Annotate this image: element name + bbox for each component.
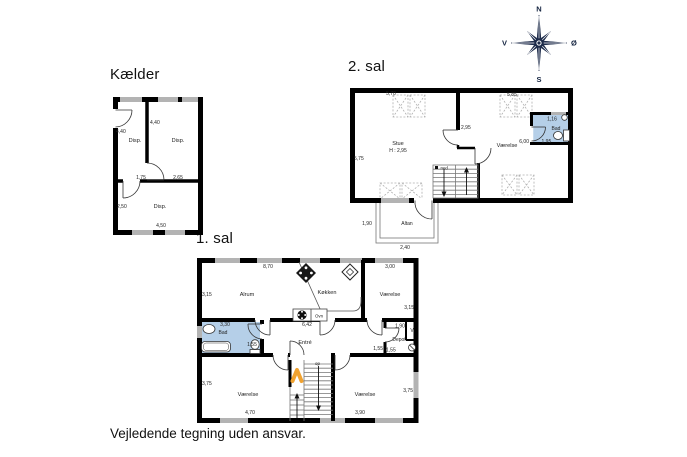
stair-ned-label: ned <box>441 166 449 171</box>
dim-label: 3,15 <box>404 305 414 311</box>
dim-label: 4,40 <box>116 129 126 135</box>
dim-label: 2,50 <box>117 204 127 210</box>
dim-label: 2,65 <box>173 175 183 181</box>
room-label-altan: Altan <box>401 221 413 227</box>
room-label-disp-nw: Disp. <box>129 138 142 144</box>
dim-label: 6,42 <box>302 322 312 328</box>
dim-label: 1,16 <box>547 117 557 123</box>
dim-label: 1,55 <box>373 346 383 352</box>
dim-label: 8,70 <box>263 264 273 270</box>
stair-op-label: op <box>315 361 320 366</box>
dim-label: 5,75 <box>354 156 364 162</box>
dim-label: 3,00 <box>385 264 395 270</box>
sal2-outer-wall <box>353 91 571 201</box>
room-label-depot: Depot <box>392 337 406 343</box>
dim-label: 5,70 <box>386 91 396 97</box>
room-label-vaerelse-ne: Værelse <box>380 292 401 298</box>
dim-label: 3,90 <box>355 410 365 416</box>
floor-plan-sal2: ned 5,70 5,85 2,95 Stue H : 2,95 5,75 Væ… <box>345 55 585 251</box>
room-label-disp-ne: Disp. <box>172 138 185 144</box>
floor-plan-sal1: Ovn op 8,70 3, <box>192 250 427 430</box>
dim-label: 1,55 <box>247 342 257 348</box>
dim-label: 1,95 <box>542 139 552 145</box>
dim-label: 1,90 <box>362 221 372 227</box>
room-label-vaerelse: Værelse <box>497 143 518 149</box>
room-label-stue: Stue <box>392 141 404 147</box>
sink-icon <box>342 264 358 280</box>
dim-label: 5,85 <box>507 92 517 98</box>
room-label-vaerelse-sw: Værelse <box>238 392 259 398</box>
compass-label-north: N <box>536 5 541 14</box>
dim-label: 3,15 <box>202 292 212 298</box>
stair-accent-chevron <box>293 370 302 381</box>
room-label-vaerelse-se: Værelse <box>355 392 376 398</box>
compass-label-west: V <box>502 39 507 48</box>
room-label-bad: Bad <box>552 126 561 132</box>
dim-label: 4,70 <box>245 410 255 416</box>
sal1-staircase: op <box>290 360 333 421</box>
dim-label: 3,30 <box>220 322 230 328</box>
room-label-disp-s: Disp. <box>154 204 167 210</box>
floor-plan-kaelder: 4,40 4,40 Disp. Disp. 1,75 2,65 2,50 Dis… <box>105 90 210 240</box>
ceiling-height-label: H : 2,95 <box>389 148 407 154</box>
dim-label: 3,75 <box>202 381 212 387</box>
kaelder-title: Kælder <box>110 66 160 83</box>
dim-label: 1,75 <box>136 175 146 181</box>
ventilation-fan-icon <box>409 344 416 351</box>
compass-label-east: Ø <box>571 39 577 48</box>
sal1-doors <box>248 320 399 370</box>
sal2-staircase: ned <box>433 165 478 198</box>
room-label-entre: Entré <box>298 340 311 346</box>
room-label-alrum: Alrum <box>240 292 255 298</box>
room-label-bad: Bad <box>219 330 228 336</box>
dim-label: 6,00 <box>519 139 529 145</box>
hob-icon <box>296 263 316 283</box>
dim-label: 1,55 <box>386 348 396 354</box>
dim-label: 4,50 <box>156 223 166 229</box>
dim-label: 1,90 <box>395 324 405 330</box>
room-label-koekken: Køkken <box>318 290 337 296</box>
dim-label: 2,95 <box>461 125 471 131</box>
oven-label: Ovn <box>315 314 324 319</box>
dim-label: 4,40 <box>150 120 160 126</box>
dim-label: 3,75 <box>403 388 413 394</box>
